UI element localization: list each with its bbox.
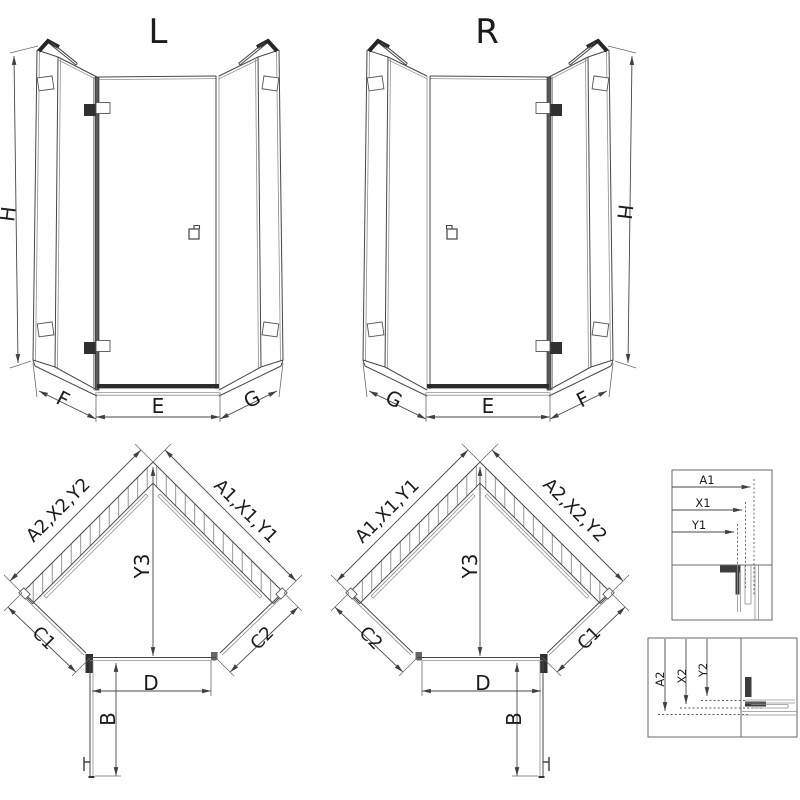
elevation-left-height-label: H (0, 205, 21, 223)
detail-y2-label: Y2 (696, 663, 710, 678)
elevation-right-title: R (475, 12, 499, 52)
plan-right-door-width-label: D (475, 671, 490, 695)
detail-x1-label: X1 (695, 496, 710, 510)
detail-x2-label: X2 (675, 668, 689, 683)
elevation-right-drawing (363, 41, 636, 422)
plan-left-drawing (4, 444, 302, 777)
detail-y1-label: Y1 (691, 518, 706, 532)
detail-a1-label: A1 (699, 473, 714, 487)
elevation-left-e-label: E (152, 394, 165, 418)
detail-box-a2x2y2 (648, 638, 797, 737)
plan-left-door-width-label: D (143, 671, 158, 695)
plan-left-door-open-label: B (96, 712, 120, 726)
plan-right-depth-label: Y3 (458, 554, 482, 580)
wall-profile-section (742, 677, 797, 715)
technical-drawing-canvas: L H F E G R H G E F A2,X2,Y2 A1,X1,Y1 Y3… (0, 0, 800, 800)
elevation-right-height-label: H (612, 203, 638, 221)
plan-left-depth-label: Y3 (130, 554, 154, 580)
elevation-right-e-label: E (482, 394, 495, 418)
elevation-left-f-label: F (52, 386, 73, 413)
elevation-left-title: L (149, 12, 168, 52)
elevation-right-g-label: G (382, 385, 407, 413)
wall-profile-section (720, 565, 759, 620)
shower-enclosure-technical-drawing: L H F E G R H G E F A2,X2,Y2 A1,X1,Y1 Y3… (0, 0, 800, 800)
plan-right-door-open-label: B (502, 712, 526, 726)
elevation-left-g-label: G (240, 385, 265, 413)
detail-box-a1x1y1 (672, 470, 772, 620)
detail-a2-label: A2 (653, 671, 667, 686)
plan-right-drawing (331, 444, 629, 777)
elevation-left-drawing (10, 41, 283, 422)
